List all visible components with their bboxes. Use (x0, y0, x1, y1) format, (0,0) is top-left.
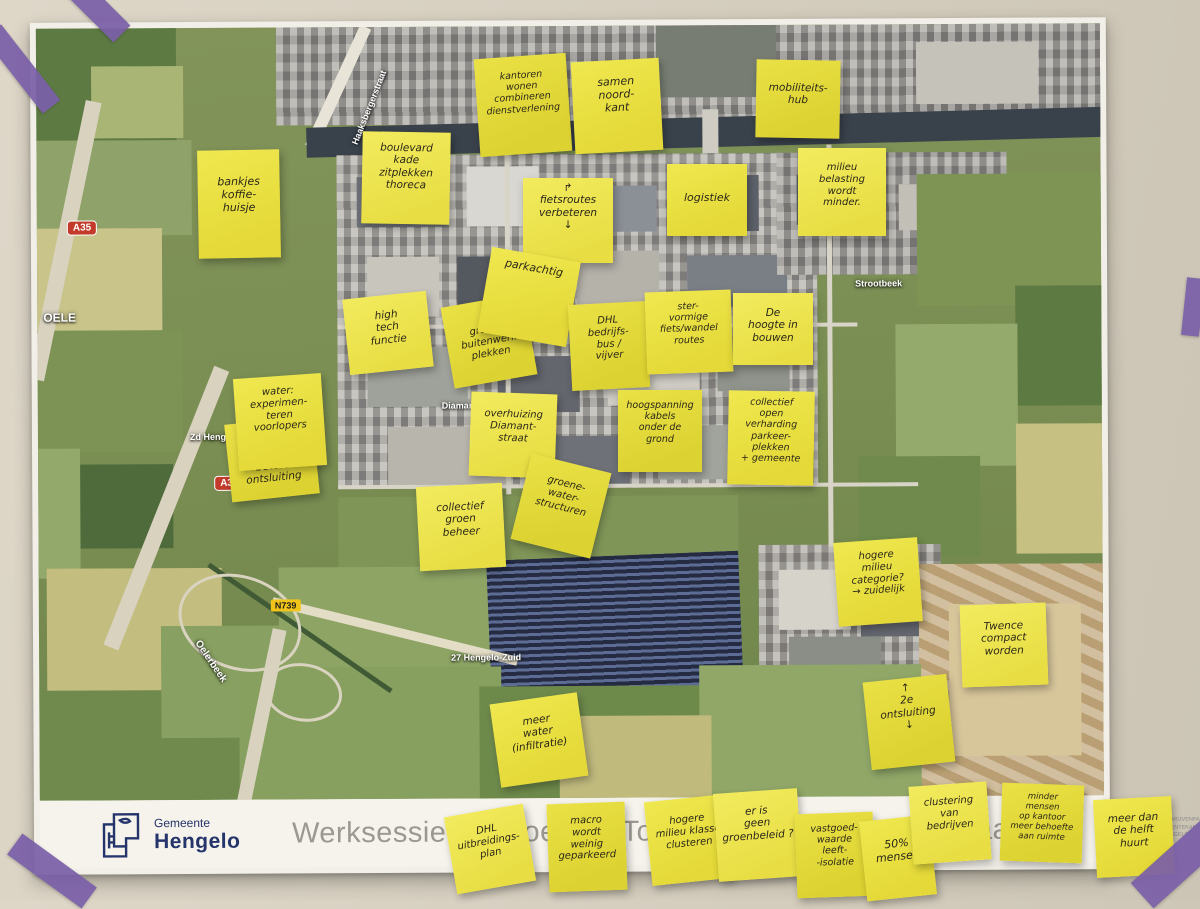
sticky-note-collectief-groenbeheer: collectief groen beheer (416, 483, 506, 571)
sticky-note-water-experimenteren: water: experimen- teren voorlopers (233, 373, 327, 471)
map-label-a35-north: A35 (67, 220, 97, 235)
sticky-note-twence-compact: Twence compact worden (960, 603, 1049, 688)
map-label-hengelo-zuid: 27 Hengelo-Zuid (451, 652, 521, 662)
map-field (895, 324, 1018, 467)
logo-small-text: Gemeente (154, 816, 240, 830)
sticky-note-stervormige-routes: ster- vormige fiets/wandel routes (645, 290, 734, 375)
map-label-oele: OELE (43, 311, 76, 325)
sticky-note-hogere-milieucategorie: hogere milieu categorie? → zuidelijk (833, 537, 923, 627)
sticky-note-tweede-ontsluiting: ↑ 2e ontsluiting ↓ (863, 674, 956, 770)
sticky-note-boulevard: boulevard kade zitplekken thoreca (361, 131, 451, 225)
sticky-note-mobiliteitshub: mobiliteits- hub (755, 59, 840, 138)
canal-bridge (702, 109, 718, 153)
sticky-note-bankjes: bankjes koffie- huisje (197, 149, 281, 258)
map-field (1016, 423, 1104, 553)
photo-of-workshop-poster: { "poster": { "title": "Werksessie vergr… (0, 0, 1200, 900)
sticky-note-milieubelasting: milieu belasting wordt minder. (798, 148, 886, 236)
sticky-note-minder-mensen-kantoor: minder mensen op kantoor meer behoefte a… (1000, 783, 1085, 864)
tape-right-mid (1181, 277, 1200, 337)
gemeente-hengelo-logo-text: Gemeente Hengelo (154, 816, 241, 854)
sticky-note-geen-groenbeleid: er is geen groenbeleid ? (713, 788, 803, 882)
logo-large-text: Hengelo (154, 830, 240, 854)
sticky-note-hoogte-in-bouwen: De hoogte in bouwen (733, 293, 813, 365)
sticky-note-logistiek: logistiek (667, 164, 747, 236)
gemeente-hengelo-logo-icon (100, 810, 142, 860)
map-woods (1015, 285, 1104, 405)
sticky-note-macro-geparkeerd: macro wordt weinig geparkeerd (546, 802, 627, 893)
map-field (91, 66, 183, 138)
sticky-note-clustering-bedrijven: clustering van bedrijven (908, 781, 991, 864)
map-urban-block (916, 42, 1038, 105)
sticky-note-dhl-bedrijfsbus: DHL bedrijfs- bus / vijver (568, 301, 650, 391)
sticky-note-hightech: high tech functie (342, 291, 433, 375)
sticky-note-hoogspanning: hoogspanning kabels onder de grond (618, 390, 702, 472)
map-label-n739: N739 (271, 599, 301, 611)
sticky-note-meer-water-infiltratie: meer water (infiltratie) (490, 692, 589, 787)
sticky-note-collectief-verharding: collectief open verharding parkeer- plek… (727, 390, 815, 485)
map-label-strootbeek: Strootbeek (855, 278, 902, 288)
map-field (37, 330, 183, 453)
sticky-note-samen-noordkant: samen noord- kant (571, 58, 664, 154)
sticky-note-kantoren: kantoren wonen combineren dienstverlenin… (474, 53, 573, 157)
sticky-note-dhl-uitbreidingsplan: DHL uitbreidings- plan (444, 804, 536, 895)
sticky-note-fietsroutes: ↱ fietsroutes verbeteren ↓ (523, 178, 613, 263)
sticky-note-parkachtig: parkachtig (477, 247, 581, 347)
gemeente-hengelo-logo: Gemeente Hengelo (100, 810, 241, 861)
map-field (38, 449, 81, 579)
